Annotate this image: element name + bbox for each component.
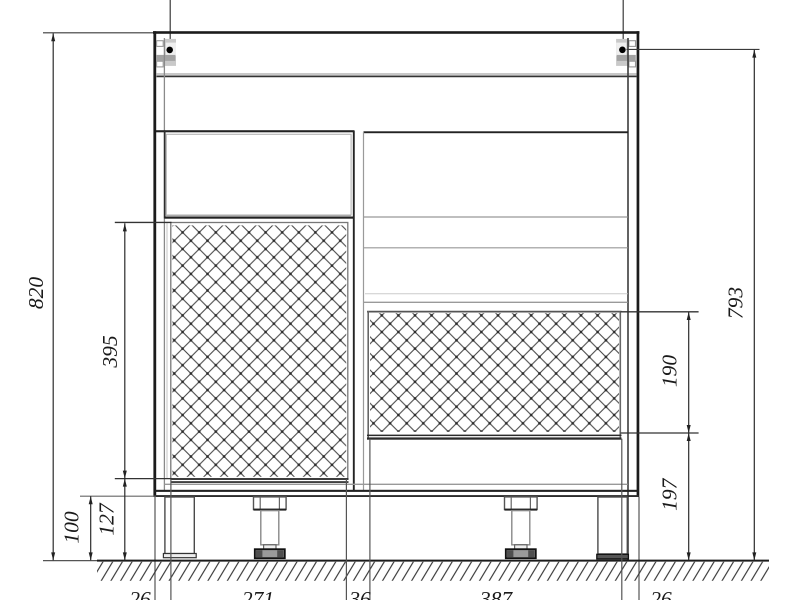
svg-text:820: 820 [24, 277, 48, 310]
svg-text:271: 271 [242, 587, 274, 600]
svg-text:36: 36 [348, 587, 371, 600]
svg-text:26: 26 [129, 587, 151, 600]
svg-text:793: 793 [724, 287, 748, 319]
svg-text:127: 127 [95, 502, 119, 536]
svg-text:26: 26 [650, 587, 672, 600]
svg-text:197: 197 [658, 477, 682, 511]
svg-text:190: 190 [658, 355, 682, 388]
svg-text:100: 100 [60, 511, 84, 544]
svg-text:395: 395 [98, 335, 122, 369]
svg-text:387: 387 [479, 587, 514, 600]
